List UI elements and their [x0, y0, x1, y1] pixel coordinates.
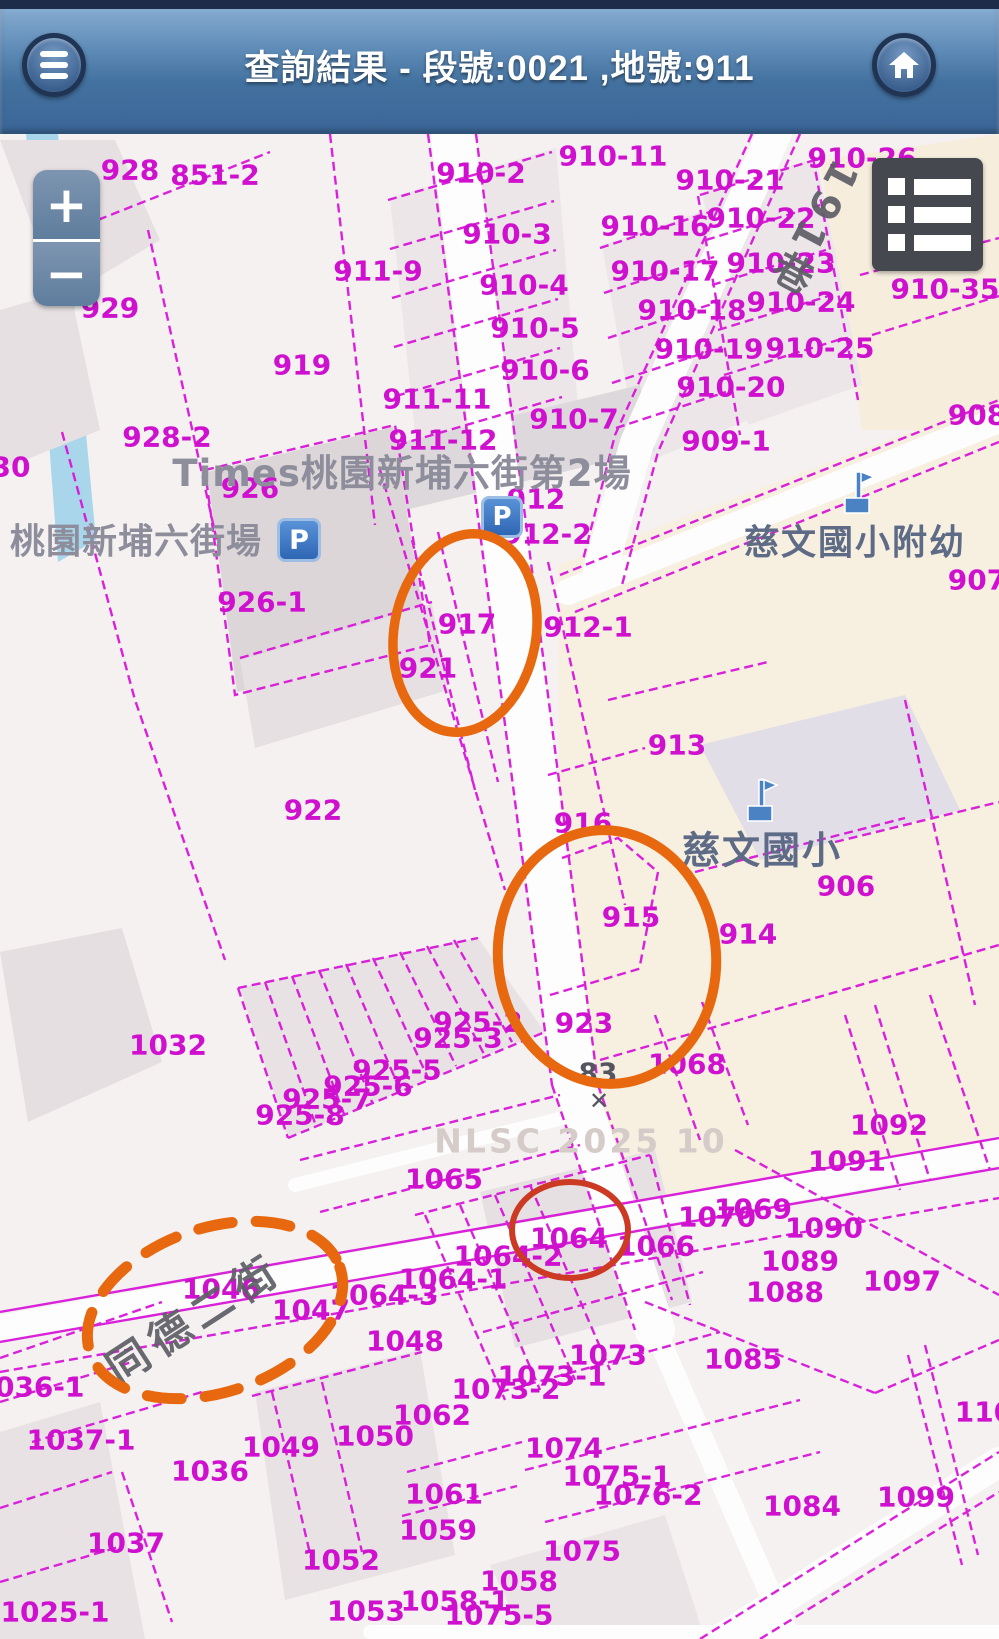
parking-icon: P	[481, 496, 523, 538]
school-icon	[743, 776, 779, 824]
hamburger-icon	[40, 51, 68, 57]
parking-icon: P	[277, 518, 321, 562]
app-window: 928851-2910-2910-11910-26910-21910-16910…	[0, 0, 999, 1639]
status-strip	[0, 0, 999, 9]
layer-list-button[interactable]	[872, 158, 983, 271]
home-button[interactable]	[872, 33, 936, 97]
school-icon	[840, 468, 876, 516]
page-title: 查詢結果 - 段號:0021 ,地號:911	[0, 40, 999, 91]
zoom-in-button[interactable]: +	[33, 170, 100, 242]
map-base-svg	[0, 0, 999, 1639]
home-icon	[888, 50, 920, 80]
header-bar: 查詢結果 - 段號:0021 ,地號:911	[0, 0, 999, 134]
zoom-out-button[interactable]: −	[33, 242, 100, 306]
list-icon	[888, 178, 905, 195]
menu-button[interactable]	[22, 33, 86, 97]
map[interactable]: 928851-2910-2910-11910-26910-21910-16910…	[0, 0, 999, 1639]
zoom-control: + −	[33, 170, 100, 306]
